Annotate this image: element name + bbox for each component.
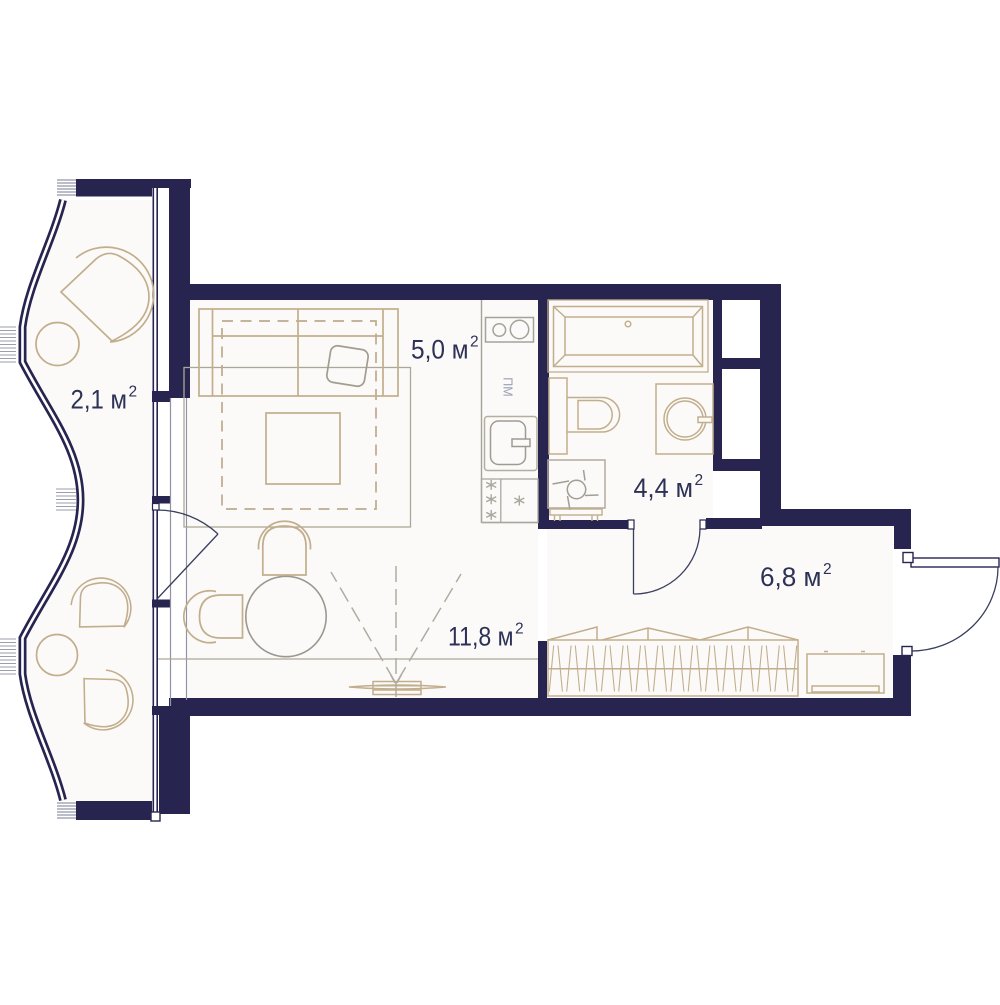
svg-text:5,0 м: 5,0 м xyxy=(411,335,469,365)
svg-text:2,1 м: 2,1 м xyxy=(71,385,128,415)
svg-text:2: 2 xyxy=(129,384,138,401)
svg-text:2: 2 xyxy=(515,621,524,638)
svg-text:11,8 м: 11,8 м xyxy=(448,622,514,652)
svg-text:2: 2 xyxy=(823,561,832,578)
svg-text:2: 2 xyxy=(695,472,704,489)
svg-text:4,4 м: 4,4 м xyxy=(634,473,694,503)
svg-text:ПМ: ПМ xyxy=(501,377,515,396)
svg-text:6,8 м: 6,8 м xyxy=(760,562,822,592)
svg-text:2: 2 xyxy=(470,334,479,351)
